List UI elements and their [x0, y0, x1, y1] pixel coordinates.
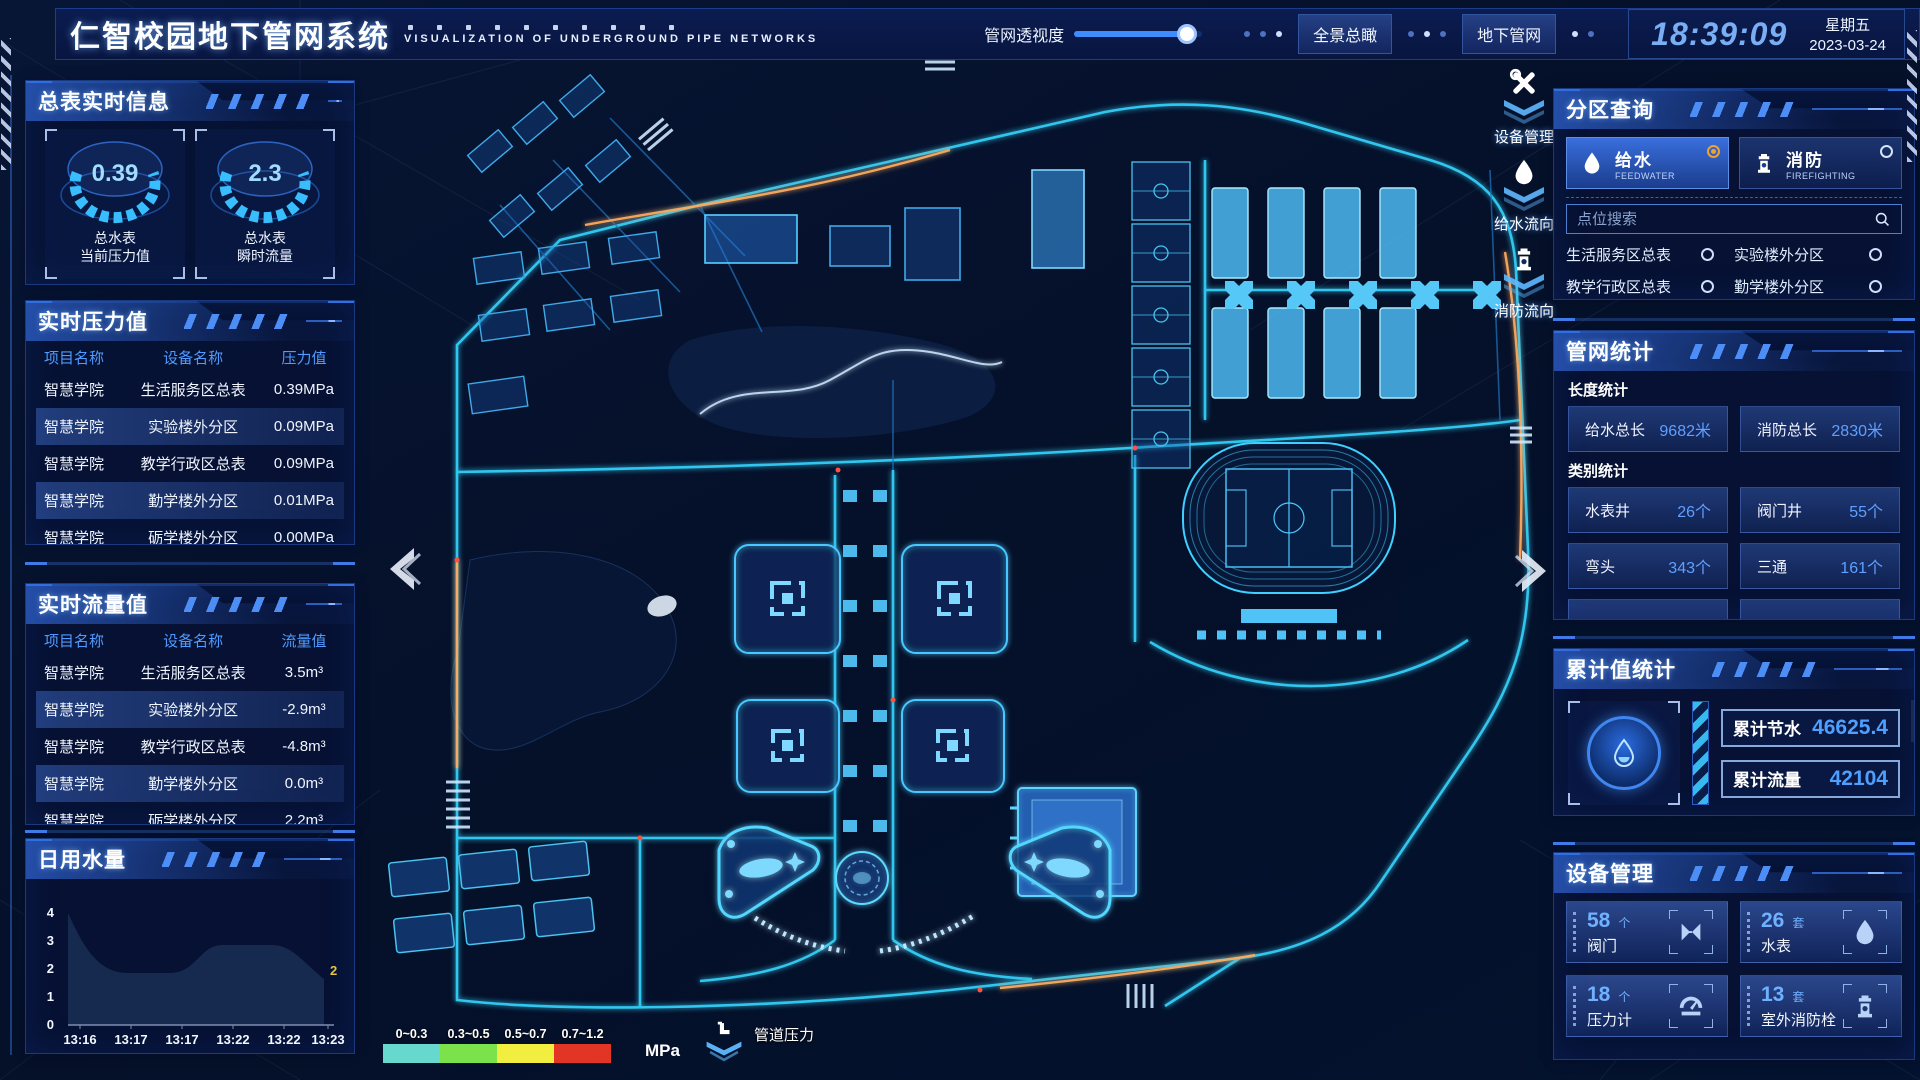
dashed-divider — [1566, 197, 1902, 198]
flow-table: 项目名称 设备名称 流量值 智慧学院 生活服务区总表 3.5m³ 智慧学院 实验… — [26, 624, 354, 825]
firefighting-radio[interactable] — [1880, 145, 1893, 158]
device-card-pressure-gauges[interactable]: 18个 压力计 — [1566, 975, 1728, 1037]
line-decoration — [306, 320, 342, 322]
firefighting-toggle-button[interactable]: 消防 FIREFIGHTING — [1739, 137, 1902, 189]
panel-meter-realtime: 总表实时信息 0.39 总水表 当前压力值 — [25, 80, 355, 285]
zone-point-list: 生活服务区总表 实验楼外分区 教学行政区总表 勤学楼外分区 砺学楼外分区 宿舍区… — [1554, 234, 1914, 300]
line-decoration — [306, 603, 342, 605]
separator-decoration — [1553, 636, 1915, 639]
map-next-arrow[interactable] — [1512, 548, 1554, 594]
legend-segment: 0~0.3 — [383, 1027, 440, 1063]
stat-valve-wells: 阀门井 55个 — [1740, 487, 1900, 533]
panel-title: 总表实时信息 — [38, 86, 170, 116]
line-decoration — [1834, 668, 1902, 670]
dots-decoration — [408, 25, 818, 30]
device-card-valves[interactable]: 58个 阀门 — [1566, 901, 1728, 963]
cumulative-flow: 累计流量 42104 — [1721, 760, 1900, 798]
panel-title-bar: 管网统计 — [1554, 331, 1914, 371]
slashes-decoration — [1690, 866, 1802, 881]
hydrant-icon — [1752, 150, 1776, 176]
panel-title-bar: 累计值统计 — [1554, 649, 1914, 689]
panel-title: 设备管理 — [1566, 858, 1654, 888]
length-stats-label: 长度统计 — [1554, 371, 1914, 406]
line-decoration — [284, 858, 342, 860]
panel-daily-water: 日用水量 4 3 2 1 0 13:16 13:17 13:17 13:22 1… — [25, 838, 355, 1054]
gauge-card-flow: 2.3 总水表 瞬时流量 — [195, 129, 335, 279]
svg-text:2: 2 — [47, 961, 54, 976]
radio-icon[interactable] — [1869, 248, 1882, 261]
panel-title-bar: 分区查询 — [1554, 89, 1914, 129]
water-drop-icon — [1509, 157, 1539, 187]
separator-decoration — [1553, 842, 1915, 845]
search-icon[interactable] — [1874, 211, 1891, 228]
slashes-decoration — [1690, 102, 1802, 117]
legend-swatch — [383, 1044, 440, 1063]
separator-decoration — [25, 562, 355, 565]
category-stats-label: 类别统计 — [1554, 452, 1914, 487]
table-row: 智慧学院 生活服务区总表 3.5m³ — [36, 654, 344, 691]
feedwater-flow-layer-toggle[interactable]: 给水流向 — [1494, 157, 1554, 234]
line-decoration — [1812, 350, 1902, 352]
table-row: 智慧学院 生活服务区总表 0.39MPa — [36, 371, 344, 408]
stat-clipped — [1568, 599, 1728, 620]
table-row: 智慧学院 砺学楼外分区 2.2m³ — [36, 802, 344, 825]
table-row: 智慧学院 勤学楼外分区 0.01MPa — [36, 482, 344, 519]
table-row: 智慧学院 砺学楼外分区 0.00MPa — [36, 519, 344, 545]
legend-swatch — [554, 1044, 611, 1063]
cumulative-water-icon-card — [1568, 701, 1680, 805]
transparency-slider[interactable] — [1074, 31, 1202, 37]
slashes-decoration — [184, 597, 296, 612]
zone-point-item[interactable]: 生活服务区总表 — [1566, 238, 1734, 270]
svg-text:2: 2 — [330, 963, 337, 978]
svg-text:3: 3 — [47, 933, 54, 948]
svg-text:13:23: 13:23 — [311, 1032, 344, 1047]
stat-elbows: 弯头 343个 — [1568, 543, 1728, 589]
panel-title-bar: 实时流量值 — [26, 584, 354, 624]
stat-tees: 三通 161个 — [1740, 543, 1900, 589]
dots-decoration — [1572, 31, 1594, 37]
line-decoration — [328, 100, 342, 102]
table-row: 智慧学院 教学行政区总表 -4.8m³ — [36, 728, 344, 765]
map-layer-controls: 设备管理 给水流向 消防流向 — [1490, 66, 1558, 331]
zone-point-item[interactable]: 实验楼外分区 — [1734, 238, 1902, 270]
svg-text:13:22: 13:22 — [267, 1032, 300, 1047]
table-row: 智慧学院 勤学楼外分区 0.0m³ — [36, 765, 344, 802]
legend-swatch — [497, 1044, 554, 1063]
feedwater-toggle-button[interactable]: 给水 FEEDWATER — [1566, 137, 1729, 189]
slider-thumb[interactable] — [1177, 24, 1197, 44]
dots-decoration — [1244, 31, 1282, 37]
water-drop-badge — [1587, 716, 1661, 790]
panel-title: 实时流量值 — [38, 589, 148, 619]
pressure-table: 项目名称 设备名称 压力值 智慧学院 生活服务区总表 0.39MPa 智慧学院 … — [26, 341, 354, 545]
valve-icon — [1676, 917, 1706, 947]
legend-segment: 0.5~0.7 — [497, 1027, 554, 1063]
flow-gauge: 2.3 — [203, 129, 327, 233]
pipe-pressure-legend: 0~0.3 0.3~0.5 0.5~0.7 0.7~1.2 MPa 管道压力 — [383, 1019, 814, 1063]
pipe-transparency-control: 管网透视度 — [984, 22, 1202, 46]
pressure-gauge-icon — [1676, 991, 1706, 1021]
panel-title-bar: 设备管理 — [1554, 853, 1914, 893]
panel-title: 实时压力值 — [38, 306, 148, 336]
water-drop-icon — [1579, 150, 1605, 176]
overview-button[interactable]: 全景总瞰 — [1298, 14, 1392, 54]
top-header-bar: 仁智校园地下管网系统 VISUALIZATION OF UNDERGROUND … — [55, 8, 1920, 60]
panel-zone-query: 分区查询 给水 FEEDWATER 消防 — [1553, 88, 1915, 300]
chevron-down-icon — [1501, 274, 1547, 298]
slider-fill — [1074, 31, 1187, 37]
point-search-box — [1566, 204, 1902, 234]
legend-unit: MPa — [645, 1041, 680, 1061]
slashes-decoration — [162, 852, 274, 867]
clock-time: 18:39:09 — [1651, 16, 1787, 53]
cumulative-saved-water: 累计节水 46625.4 — [1721, 709, 1900, 747]
table-header: 项目名称 设备名称 流量值 — [36, 626, 344, 654]
device-card-outdoor-hydrants[interactable]: 13套 室外消防栓 — [1740, 975, 1902, 1037]
panel-device-management: 设备管理 58个 阀门 26套 水表 — [1553, 852, 1915, 1060]
gauge-label: 总水表 瞬时流量 — [237, 229, 293, 265]
svg-text:2.3: 2.3 — [248, 160, 281, 187]
hydrant-icon — [1510, 244, 1538, 274]
chevron-down-icon — [704, 1041, 744, 1063]
svg-text:0: 0 — [47, 1017, 54, 1032]
slashes-decoration — [184, 314, 296, 329]
water-drop-icon — [1850, 917, 1880, 947]
table-header: 项目名称 设备名称 压力值 — [36, 343, 344, 371]
radio-icon[interactable] — [1701, 280, 1714, 293]
zone-point-item[interactable]: 教学行政区总表 — [1566, 270, 1734, 300]
title-subtitle-block: VISUALIZATION OF UNDERGROUND PIPE NETWOR… — [404, 23, 818, 45]
svg-text:13:16: 13:16 — [63, 1032, 96, 1047]
gauge-label: 总水表 当前压力值 — [80, 229, 150, 265]
separator-decoration — [25, 830, 355, 833]
panel-cumulative-stats: 累计值统计 累计节水 46625.4 — [1553, 648, 1915, 816]
svg-text:13:17: 13:17 — [114, 1032, 147, 1047]
map-prev-arrow[interactable] — [382, 546, 424, 592]
device-management-layer-toggle[interactable]: 设备管理 — [1494, 66, 1554, 147]
edge-line-decoration — [10, 75, 12, 1055]
clock-date: 2023-03-24 — [1809, 37, 1886, 54]
svg-text:0.39: 0.39 — [92, 160, 139, 187]
stat-fire-length: 消防总长 2830米 — [1740, 406, 1900, 452]
stat-clipped — [1740, 599, 1900, 620]
tools-icon — [1507, 66, 1541, 100]
table-row: 智慧学院 实验楼外分区 0.09MPa — [36, 408, 344, 445]
separator-decoration — [1553, 318, 1915, 321]
zone-point-item[interactable]: 勤学楼外分区 — [1734, 270, 1902, 300]
panel-network-stats: 管网统计 长度统计 给水总长 9682米 消防总长 2830米 类别统计 水表井… — [1553, 330, 1915, 620]
panel-title: 日用水量 — [38, 844, 126, 874]
hazard-stripes-left — [1, 38, 11, 170]
panel-title: 分区查询 — [1566, 94, 1654, 124]
app-title: 仁智校园地下管网系统 — [70, 12, 390, 56]
pressure-gauge-icon — [713, 1019, 735, 1041]
line-decoration — [1812, 108, 1902, 110]
svg-text:13:22: 13:22 — [216, 1032, 249, 1047]
pressure-gauge: 0.39 — [53, 129, 177, 233]
slashes-decoration — [206, 94, 318, 109]
point-search-input[interactable] — [1577, 211, 1874, 228]
table-row: 智慧学院 教学行政区总表 0.09MPa — [36, 445, 344, 482]
clock-block: 18:39:09 星期五 2023-03-24 — [1628, 9, 1905, 59]
feedwater-radio[interactable] — [1707, 145, 1720, 158]
legend-segment: 0.3~0.5 — [440, 1027, 497, 1063]
chevron-down-icon — [1501, 100, 1547, 124]
svg-text:1: 1 — [47, 989, 54, 1004]
radio-icon[interactable] — [1869, 280, 1882, 293]
dots-decoration — [1408, 31, 1446, 37]
hazard-stripe-decoration — [1692, 701, 1709, 805]
stat-water-meter-wells: 水表井 26个 — [1568, 487, 1728, 533]
fire-flow-layer-toggle[interactable]: 消防流向 — [1494, 244, 1554, 321]
chevron-down-icon — [1501, 187, 1547, 211]
panel-title: 累计值统计 — [1566, 654, 1676, 684]
pipe-pressure-toggle[interactable]: 管道压力 — [704, 1019, 814, 1063]
panel-realtime-flow: 实时流量值 项目名称 设备名称 流量值 智慧学院 生活服务区总表 3.5m³ 智… — [25, 583, 355, 825]
app-subtitle: VISUALIZATION OF UNDERGROUND PIPE NETWOR… — [404, 33, 818, 45]
slashes-decoration — [1690, 344, 1802, 359]
svg-text:4: 4 — [47, 905, 55, 920]
panel-title-bar: 日用水量 — [26, 839, 354, 879]
panel-title-bar: 总表实时信息 — [26, 81, 354, 121]
clock-weekday: 星期五 — [1825, 14, 1870, 35]
panel-realtime-pressure: 实时压力值 项目名称 设备名称 压力值 智慧学院 生活服务区总表 0.39MPa… — [25, 300, 355, 545]
hydrant-icon — [1851, 991, 1879, 1021]
hazard-stripes-right — [1907, 30, 1917, 162]
dashboard-stage: 仁智校园地下管网系统 VISUALIZATION OF UNDERGROUND … — [0, 0, 1920, 1080]
svg-text:13:17: 13:17 — [165, 1032, 198, 1047]
transparency-label: 管网透视度 — [984, 22, 1064, 46]
table-row: 智慧学院 实验楼外分区 -2.9m³ — [36, 691, 344, 728]
panel-title: 管网统计 — [1566, 336, 1654, 366]
device-card-water-meters[interactable]: 26套 水表 — [1740, 901, 1902, 963]
panel-title-bar: 实时压力值 — [26, 301, 354, 341]
radio-icon[interactable] — [1701, 248, 1714, 261]
gauge-card-pressure: 0.39 总水表 当前压力值 — [45, 129, 185, 279]
stat-feedwater-length: 给水总长 9682米 — [1568, 406, 1728, 452]
legend-swatch — [440, 1044, 497, 1063]
slashes-decoration — [1712, 662, 1824, 677]
underground-pipes-button[interactable]: 地下管网 — [1462, 14, 1556, 54]
daily-water-chart: 4 3 2 1 0 13:16 13:17 13:17 13:22 13:22 … — [28, 885, 346, 1049]
line-decoration — [1812, 872, 1902, 874]
water-drop-icon — [1608, 737, 1640, 769]
legend-segment: 0.7~1.2 — [554, 1027, 611, 1063]
